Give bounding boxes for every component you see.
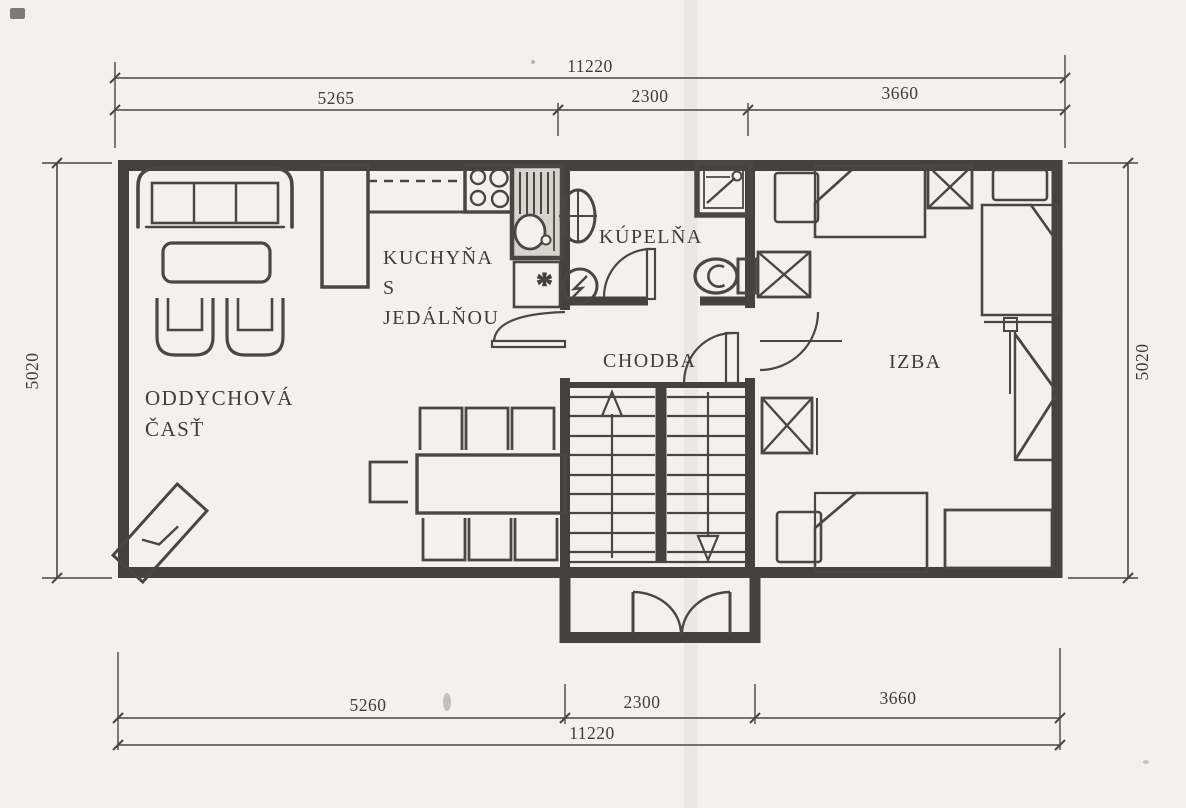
dining-table xyxy=(417,455,565,513)
door-swing-arc xyxy=(633,592,681,634)
dim-top-seg3-label: 3660 xyxy=(882,83,919,103)
chest xyxy=(945,510,1052,568)
nightstand-crossed xyxy=(762,398,817,455)
lounge-label-line1: ODDYCHOVÁ xyxy=(145,386,294,410)
bed xyxy=(982,170,1058,322)
pillow xyxy=(775,173,818,222)
door-swing-arc xyxy=(604,249,651,297)
dining-chairs-top xyxy=(420,408,554,450)
kitchen-fittings: * xyxy=(322,165,562,307)
lounge-area xyxy=(113,168,292,582)
dining-set xyxy=(370,408,565,560)
dim-top-seg1-label: 5265 xyxy=(318,88,355,108)
folding-bed xyxy=(1004,318,1057,461)
washing-machine xyxy=(559,189,597,243)
bed xyxy=(777,493,927,572)
floor-plan-drawing: * xyxy=(0,0,1186,808)
dim-bottom-seg2-label: 2300 xyxy=(624,692,661,712)
armchair xyxy=(227,298,283,355)
dim-bottom-segments xyxy=(113,684,1065,724)
kitchen-hallway-door xyxy=(492,312,565,347)
dim-top-seg2-label: 2300 xyxy=(632,86,669,106)
pillow xyxy=(993,170,1047,200)
entry-double-door xyxy=(633,592,730,634)
kitchen-label-line1: KUCHYŇA xyxy=(383,246,494,269)
sink-note-asterisk: * xyxy=(536,266,553,303)
dim-bottom-seg3-label: 3660 xyxy=(880,688,917,708)
bathroom-door xyxy=(604,249,655,299)
sofa xyxy=(138,168,292,227)
hallway-label: CHODBA xyxy=(603,350,696,372)
dim-top-overall-label: 11220 xyxy=(567,56,613,76)
door-swing-arc xyxy=(494,312,565,341)
kitchen-label-line3: JEDÁLŇOU xyxy=(383,306,499,329)
armchair xyxy=(157,298,213,355)
floor-plan-page: * xyxy=(0,0,1186,808)
vestibule-walls xyxy=(565,572,755,638)
shower xyxy=(697,163,750,215)
stair-steps-right-flight xyxy=(667,397,745,552)
kitchen-sink xyxy=(512,166,562,258)
dim-bottom-seg1-label: 5260 xyxy=(350,695,387,715)
stove xyxy=(465,165,512,212)
dim-left xyxy=(42,158,112,583)
bed xyxy=(775,166,925,237)
dining-chair-left xyxy=(370,462,408,502)
dining-chairs-bottom xyxy=(423,518,557,560)
kitchen-counter xyxy=(368,181,465,212)
dim-right xyxy=(1068,158,1138,583)
hallway-bedroom-door xyxy=(684,312,842,383)
coffee-table xyxy=(163,243,270,282)
dim-right-label: 5020 xyxy=(1132,344,1152,381)
kitchen-label-line2: S xyxy=(383,277,396,299)
dim-left-label: 5020 xyxy=(22,353,42,390)
appliance-space: * xyxy=(514,262,560,307)
dim-top-segments xyxy=(110,103,1070,136)
tall-cabinet xyxy=(322,165,368,287)
bedroom-label: IZBA xyxy=(889,351,942,373)
bathroom-label: KÚPELŇA xyxy=(599,224,703,248)
lounge-label-line2: ČASŤ xyxy=(145,417,205,441)
dim-bottom-overall-label: 11220 xyxy=(569,723,615,743)
nightstand-crossed xyxy=(758,252,810,297)
nightstand-crossed xyxy=(928,166,972,208)
